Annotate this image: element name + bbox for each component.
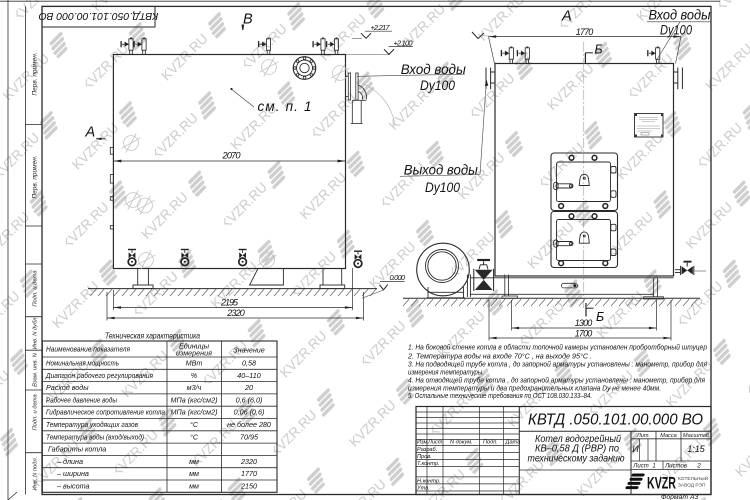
svg-text:Номинальная мощность: Номинальная мощность bbox=[46, 359, 119, 368]
svg-text:не более 280: не более 280 bbox=[227, 420, 271, 429]
svg-text:5. Остальные технические треб: 5. Остальные технические требования по О… bbox=[408, 391, 592, 400]
svg-text:техническому заданию: техническому заданию bbox=[528, 454, 625, 465]
svg-text:Перв. примен.: Перв. примен. bbox=[32, 155, 39, 198]
svg-text:мм: мм bbox=[189, 457, 199, 466]
svg-text:+2.217: +2.217 bbox=[371, 23, 391, 32]
svg-text:Dy100: Dy100 bbox=[420, 78, 455, 93]
svg-text:А3: А3 bbox=[689, 494, 699, 500]
svg-text:Габариты котла: Габариты котла bbox=[48, 445, 106, 454]
svg-text:Пров.: Пров. bbox=[417, 454, 432, 460]
svg-text:1: 1 bbox=[652, 464, 655, 470]
svg-text:мм: мм bbox=[189, 469, 199, 478]
svg-text:А: А bbox=[561, 9, 572, 25]
svg-text:– длина: – длина bbox=[56, 457, 83, 466]
svg-text:– ширина: – ширина bbox=[56, 469, 89, 478]
svg-text:КВТД.050.101.00.000 ВО: КВТД.050.101.00.000 ВО bbox=[39, 10, 159, 22]
svg-text:Лист: Лист bbox=[427, 440, 443, 446]
svg-text:0,58: 0,58 bbox=[242, 359, 256, 368]
svg-text:Разраб.: Разраб. bbox=[417, 447, 437, 453]
svg-text:1300: 1300 bbox=[575, 318, 593, 328]
svg-text:20: 20 bbox=[244, 383, 253, 392]
svg-text:2320: 2320 bbox=[226, 308, 245, 318]
svg-text:– высота: – высота bbox=[56, 482, 90, 491]
svg-text:Техническая характеристика: Техническая характеристика bbox=[105, 331, 200, 341]
svg-text:2150: 2150 bbox=[240, 482, 257, 491]
svg-text:0.000: 0.000 bbox=[390, 273, 406, 282]
svg-text:Б: Б bbox=[596, 310, 604, 324]
svg-text:Инв. N дубл.: Инв. N дубл. bbox=[33, 316, 39, 350]
svg-text:1770: 1770 bbox=[241, 469, 257, 478]
svg-text:2320: 2320 bbox=[240, 457, 257, 466]
svg-text:Инв. N подл.: Инв. N подл. bbox=[33, 457, 39, 491]
svg-text:KVZR: KVZR bbox=[647, 474, 676, 493]
svg-text:КВТД .050.101.00.000 ВО: КВТД .050.101.00.000 ВО bbox=[528, 412, 703, 429]
svg-text:Рабочее давление воды: Рабочее давление воды bbox=[46, 395, 118, 404]
svg-text:Формат: Формат bbox=[661, 494, 688, 500]
svg-text:+2.100: +2.100 bbox=[394, 38, 414, 47]
svg-text:1. На боковой стенке котла в: 1. На боковой стенке котла в области топ… bbox=[408, 343, 707, 352]
svg-text:Dy100: Dy100 bbox=[425, 180, 460, 195]
svg-text:°С: °С bbox=[190, 420, 199, 429]
svg-text:МВт: МВт bbox=[186, 359, 203, 368]
svg-text:Листов: Листов bbox=[664, 464, 687, 470]
svg-text:1700: 1700 bbox=[575, 328, 593, 338]
svg-text:Лист: Лист bbox=[632, 464, 648, 470]
svg-text:2195: 2195 bbox=[220, 297, 239, 307]
svg-text:Наименование показателя: Наименование показателя bbox=[46, 345, 130, 354]
svg-text:Расход воды: Расход воды bbox=[46, 383, 89, 392]
svg-text:Утв.: Утв. bbox=[416, 485, 430, 491]
svg-text:N докум.: N докум. bbox=[450, 440, 473, 446]
svg-text:Значение: Значение bbox=[233, 346, 265, 355]
svg-text:1770: 1770 bbox=[576, 27, 594, 37]
svg-text:м3/ч: м3/ч bbox=[187, 383, 202, 392]
svg-text:Гидравлическое сопротивление к: Гидравлическое сопротивление котла bbox=[46, 408, 165, 417]
svg-text:Лит.: Лит. bbox=[636, 433, 650, 439]
svg-text:1:15: 1:15 bbox=[687, 444, 706, 454]
svg-text:Температура уходящих газов: Температура уходящих газов bbox=[46, 420, 138, 429]
svg-text:Вход воды: Вход воды bbox=[649, 8, 711, 23]
svg-text:Подп. и дата: Подп. и дата bbox=[33, 270, 39, 307]
svg-text:Б: Б bbox=[595, 43, 603, 57]
svg-text:0,6 (6,0): 0,6 (6,0) bbox=[236, 395, 263, 404]
svg-text:°С: °С bbox=[190, 432, 199, 441]
svg-text:Масштаб: Масштаб bbox=[683, 433, 710, 439]
svg-text:Температура воды (вход/выход): Температура воды (вход/выход) bbox=[46, 432, 144, 441]
svg-text:40–110: 40–110 bbox=[237, 371, 260, 380]
svg-text:%: % bbox=[191, 371, 198, 380]
svg-text:Масса: Масса bbox=[660, 433, 677, 439]
svg-text:Т.контр.: Т.контр. bbox=[417, 461, 440, 467]
svg-text:2: 2 bbox=[696, 464, 701, 470]
svg-text:Dy100: Dy100 bbox=[660, 23, 692, 38]
svg-text:В: В bbox=[243, 12, 253, 28]
svg-text:70/95: 70/95 bbox=[240, 432, 259, 441]
svg-text:Взам. инв. N: Взам. инв. N bbox=[33, 352, 39, 387]
svg-text:Диапазон рабочего регулировани: Диапазон рабочего регулирования bbox=[45, 371, 153, 380]
svg-text:И: И bbox=[632, 444, 639, 454]
svg-text:измерения: измерения bbox=[176, 349, 212, 358]
svg-text:МПа (кгс/см2): МПа (кгс/см2) bbox=[171, 408, 218, 417]
svg-text:Перв. примен.: Перв. примен. bbox=[32, 52, 39, 95]
svg-text:Подп.: Подп. bbox=[483, 440, 498, 446]
svg-text:2070: 2070 bbox=[222, 151, 241, 161]
svg-text:ЗАВОД РЭП: ЗАВОД РЭП bbox=[678, 483, 706, 489]
svg-text:мм: мм bbox=[189, 482, 199, 491]
svg-text:0,06 (0,6): 0,06 (0,6) bbox=[234, 408, 265, 417]
svg-text:МПа (кгс/см2): МПа (кгс/см2) bbox=[171, 395, 218, 404]
svg-text:А: А bbox=[85, 125, 96, 141]
svg-text:Подп. и дата: Подп. и дата bbox=[33, 393, 39, 430]
svg-text:Н.контр.: Н.контр. bbox=[417, 478, 441, 484]
svg-text:Дата: Дата bbox=[505, 440, 521, 446]
